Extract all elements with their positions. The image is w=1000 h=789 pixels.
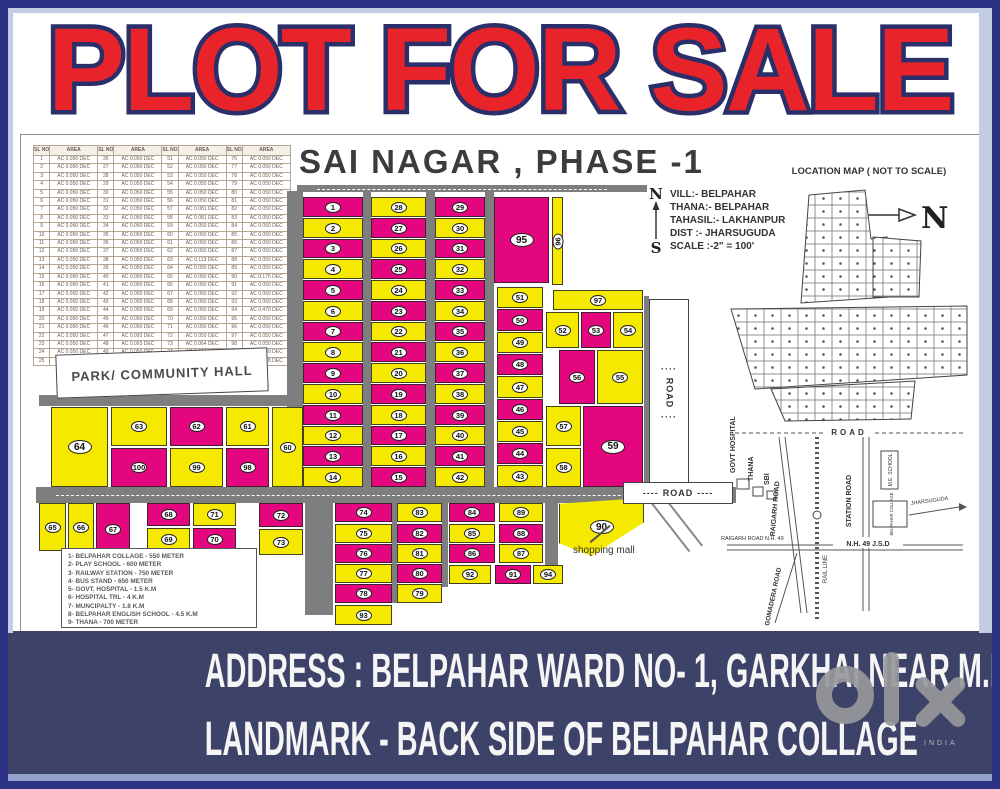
plot-25: 25 bbox=[371, 259, 426, 279]
cell-sl-no: 92 bbox=[226, 290, 242, 298]
legend-item: 5- GOVT. HOSPITAL - 1.5 K.M bbox=[68, 586, 256, 594]
plot-number: 50 bbox=[512, 315, 528, 326]
plot-8: 8 bbox=[303, 342, 363, 362]
site-title: SAI NAGAR , PHASE -1 bbox=[299, 143, 719, 181]
plot-number: 79 bbox=[412, 588, 428, 599]
site-info-block: VILL:- BELPAHAR THANA:- BELPAHAR TAHASIL… bbox=[670, 188, 820, 253]
cell-area: AC 0.050 DEC bbox=[50, 206, 98, 214]
plot-number: 46 bbox=[512, 404, 528, 415]
plot-number: 87 bbox=[513, 548, 529, 559]
plot-15: 15 bbox=[371, 467, 426, 487]
plot-number: 75 bbox=[356, 528, 372, 539]
plot-93: 93 bbox=[335, 605, 392, 625]
plot-20: 20 bbox=[371, 363, 426, 383]
minimap-north-label: N bbox=[921, 201, 948, 236]
plot-33: 33 bbox=[435, 280, 485, 300]
plot-57: 57 bbox=[546, 406, 581, 446]
cell-area: AC 0.050 DEC bbox=[178, 198, 226, 206]
plot-number: 49 bbox=[512, 337, 528, 348]
plot-number: 20 bbox=[391, 368, 407, 379]
cell-sl-no: 42 bbox=[98, 290, 114, 298]
plot-number: 5 bbox=[325, 285, 341, 296]
plot-92: 92 bbox=[449, 565, 491, 584]
plot-number: 63 bbox=[131, 421, 147, 432]
cell-sl-no: 17 bbox=[34, 290, 50, 298]
legend-item: 2- PLAY SCHOOL - 600 METER bbox=[68, 561, 256, 569]
cell-sl-no: 21 bbox=[34, 324, 50, 332]
plot-38: 38 bbox=[435, 384, 485, 404]
cell-sl-no: 20 bbox=[34, 315, 50, 323]
cell-area: AC 0.050 DEC bbox=[50, 315, 98, 323]
cell-area: AC 0.050 DEC bbox=[114, 273, 162, 281]
compass-icon: N S bbox=[646, 187, 666, 259]
cell-area: AC 0.050 DEC bbox=[242, 265, 290, 273]
cell-sl-no: 91 bbox=[226, 282, 242, 290]
road-segment bbox=[442, 503, 448, 587]
plot-number: 71 bbox=[207, 509, 223, 520]
plot-number: 89 bbox=[513, 507, 529, 518]
cell-sl-no: 93 bbox=[226, 298, 242, 306]
cell-sl-no: 68 bbox=[162, 298, 178, 306]
plot-number: 52 bbox=[555, 325, 571, 336]
plot-number: 64 bbox=[68, 440, 92, 454]
plot-10: 10 bbox=[303, 384, 363, 404]
plot-number: 27 bbox=[391, 223, 407, 234]
plot-73: 73 bbox=[259, 529, 303, 555]
cell-area: AC 0.050 DEC bbox=[50, 240, 98, 248]
header-area: AREA bbox=[178, 146, 226, 156]
cell-area: AC 0.050 DEC bbox=[242, 231, 290, 239]
plot-72: 72 bbox=[259, 503, 303, 527]
site-info-tahasil: TAHASIL:- LAKHANPUR bbox=[670, 214, 820, 227]
plot-number: 25 bbox=[391, 264, 407, 275]
compass-arrow-icon bbox=[651, 201, 661, 241]
frame-inner bbox=[979, 8, 992, 633]
plot-number: 74 bbox=[356, 507, 372, 518]
plot-74: 74 bbox=[335, 503, 392, 522]
cell-sl-no: 84 bbox=[226, 223, 242, 231]
plot-30: 30 bbox=[435, 218, 485, 238]
plot-4: 4 bbox=[303, 259, 363, 279]
cell-sl-no: 46 bbox=[98, 324, 114, 332]
cell-area: AC 0.050 DEC bbox=[114, 290, 162, 298]
cell-area: AC 0.050 DEC bbox=[242, 282, 290, 290]
plot-number: 88 bbox=[513, 528, 529, 539]
cell-sl-no: 28 bbox=[98, 172, 114, 180]
plot-48: 48 bbox=[497, 354, 543, 375]
cell-area: AC 0.050 DEC bbox=[178, 248, 226, 256]
road-dashes: ---- bbox=[697, 488, 713, 498]
cell-sl-no: 53 bbox=[162, 172, 178, 180]
cell-sl-no: 43 bbox=[98, 298, 114, 306]
cell-sl-no: 4 bbox=[34, 181, 50, 189]
header-area: AREA bbox=[242, 146, 290, 156]
plot-number: 21 bbox=[391, 347, 407, 358]
plot-78: 78 bbox=[335, 584, 392, 603]
headline-text: PLOT FOR SALE bbox=[48, 10, 953, 132]
table-row: 11AC 0.050 DEC36AC 0.050 DEC61AC 0.050 D… bbox=[34, 240, 291, 248]
park-label: PARK/ COMMUNITY HALL bbox=[71, 362, 253, 383]
plot-number: 48 bbox=[512, 359, 528, 370]
plot-number: 28 bbox=[391, 202, 407, 213]
cell-sl-no: 13 bbox=[34, 256, 50, 264]
plot-number: 41 bbox=[452, 451, 468, 462]
frame-border bbox=[0, 0, 1000, 8]
plot-18: 18 bbox=[371, 405, 426, 425]
cell-area: AC 0.050 DEC bbox=[178, 324, 226, 332]
plot-29: 29 bbox=[435, 197, 485, 217]
road-dashes: ---- bbox=[643, 488, 659, 498]
table-row: 19AC 0.050 DEC44AC 0.050 DEC69AC 0.050 D… bbox=[34, 307, 291, 315]
plot-51: 51 bbox=[497, 287, 543, 308]
plot-88: 88 bbox=[499, 524, 543, 543]
cell-sl-no: 85 bbox=[226, 231, 242, 239]
cell-sl-no: 81 bbox=[226, 198, 242, 206]
plot-number: 53 bbox=[588, 325, 604, 336]
cell-area: AC 0.050 DEC bbox=[50, 282, 98, 290]
cell-sl-no: 37 bbox=[98, 248, 114, 256]
cell-sl-no: 61 bbox=[162, 240, 178, 248]
plot-number: 83 bbox=[412, 507, 428, 518]
cell-sl-no: 59 bbox=[162, 223, 178, 231]
cell-sl-no: 56 bbox=[162, 198, 178, 206]
plot-number: 34 bbox=[452, 306, 468, 317]
table-row: 17AC 0.050 DEC42AC 0.050 DEC67AC 0.050 D… bbox=[34, 290, 291, 298]
cell-sl-no: 39 bbox=[98, 265, 114, 273]
cell-area: AC 0.050 DEC bbox=[50, 223, 98, 231]
cell-area: AC 0.050 DEC bbox=[178, 332, 226, 340]
minimap-sbi-label: SBI bbox=[764, 473, 771, 485]
plot-number: 58 bbox=[556, 462, 572, 473]
cell-area: AC 0.050 DEC bbox=[242, 298, 290, 306]
cell-sl-no: 9 bbox=[34, 223, 50, 231]
cell-sl-no: 19 bbox=[34, 307, 50, 315]
cell-sl-no: 22 bbox=[34, 332, 50, 340]
cell-sl-no: 25 bbox=[34, 357, 50, 365]
cell-sl-no: 47 bbox=[98, 332, 114, 340]
table-row: 12AC 0.050 DEC37AC 0.050 DEC62AC 0.050 D… bbox=[34, 248, 291, 256]
bottom-strip bbox=[8, 774, 992, 781]
plot-number: 17 bbox=[391, 430, 407, 441]
olx-x-icon bbox=[908, 670, 972, 734]
plot-97: 97 bbox=[553, 290, 643, 310]
compass-south-label: S bbox=[646, 241, 666, 255]
plot-number: 18 bbox=[391, 410, 407, 421]
table-row: 15AC 0.050 DEC40AC 0.050 DEC65AC 0.050 D… bbox=[34, 273, 291, 281]
plot-37: 37 bbox=[435, 363, 485, 383]
plot-65: 65 bbox=[39, 503, 66, 551]
plot-number: 8 bbox=[325, 347, 341, 358]
plot-number: 76 bbox=[356, 548, 372, 559]
table-row: 13AC 0.050 DEC38AC 0.050 DEC63AC 0.113 D… bbox=[34, 256, 291, 264]
cell-area: AC 0.050 DEC bbox=[50, 181, 98, 189]
cell-area: AC 0.050 DEC bbox=[242, 290, 290, 298]
cell-area: AC 0.050 DEC bbox=[50, 189, 98, 197]
cell-sl-no: 95 bbox=[226, 315, 242, 323]
legend-item: 4- BUS STAND - 650 METER bbox=[68, 578, 256, 586]
plot-61: 61 bbox=[226, 407, 269, 446]
cell-area: AC 0.050 DEC bbox=[50, 172, 98, 180]
table-row: 18AC 0.050 DEC43AC 0.050 DEC68AC 0.050 D… bbox=[34, 298, 291, 306]
plot-number: 86 bbox=[464, 548, 480, 559]
plot-number: 40 bbox=[452, 430, 468, 441]
cell-area: AC 0.050 DEC bbox=[114, 231, 162, 239]
minimap-raigarh-road-label: RAIGARH ROAD bbox=[770, 481, 782, 537]
plot-number: 4 bbox=[325, 264, 341, 275]
plot-44: 44 bbox=[497, 443, 543, 464]
plot-100: 100 bbox=[111, 448, 167, 487]
cell-area: AC 0.050 DEC bbox=[50, 164, 98, 172]
plot-53: 53 bbox=[581, 312, 611, 348]
plot-number: 29 bbox=[452, 202, 468, 213]
road-label-text: ROAD bbox=[664, 378, 674, 409]
plot-number: 73 bbox=[273, 537, 289, 548]
minimap-jharsuguda-label: JHARSUGUDA bbox=[910, 496, 949, 507]
plot-number: 9 bbox=[325, 368, 341, 379]
plot-34: 34 bbox=[435, 301, 485, 321]
table-row: 22AC 0.050 DEC47AC 0.093 DEC72AC 0.050 D… bbox=[34, 332, 291, 340]
cell-area: AC 0.050 DEC bbox=[242, 214, 290, 222]
cell-area: AC 0.050 DEC bbox=[242, 248, 290, 256]
table-header-row: SL NOAREASL NOAREASL NOAREASL NOAREA bbox=[34, 146, 291, 156]
cell-area: AC 0.050 DEC bbox=[242, 189, 290, 197]
plot-42: 42 bbox=[435, 467, 485, 487]
plot-number: 23 bbox=[391, 306, 407, 317]
frame-border bbox=[0, 0, 8, 789]
cell-area: AC 0.050 DEC bbox=[50, 298, 98, 306]
olx-logo: INDIA bbox=[812, 652, 984, 764]
olx-india-label: INDIA bbox=[924, 740, 958, 747]
site-info-district: DIST :- JHARSUGUDA bbox=[670, 227, 820, 240]
cell-sl-no: 38 bbox=[98, 256, 114, 264]
cell-area: AC 0.050 DEC bbox=[178, 307, 226, 315]
legend-item: 9- THANA - 700 METER bbox=[68, 619, 256, 627]
plot-number: 43 bbox=[512, 471, 528, 482]
plot-number: 100 bbox=[131, 462, 148, 473]
road-dashes: ···· bbox=[661, 364, 677, 374]
table-row: 7AC 0.050 DEC32AC 0.050 DEC57AC 0.081 DE… bbox=[34, 206, 291, 214]
plot-number: 37 bbox=[452, 368, 468, 379]
minimap-raigarh-nh49-label: RAIGARH ROAD N.H. 49 bbox=[721, 536, 784, 542]
plot-number: 38 bbox=[452, 389, 468, 400]
plot-number: 1 bbox=[325, 202, 341, 213]
table-row: 21AC 0.050 DEC46AC 0.050 DEC71AC 0.050 D… bbox=[34, 324, 291, 332]
cell-area: AC 0.050 DEC bbox=[50, 231, 98, 239]
plot-number: 31 bbox=[452, 243, 468, 254]
cell-sl-no: 90 bbox=[226, 273, 242, 281]
table-row: 8AC 0.050 DEC33AC 0.050 DEC58AC 0.081 DE… bbox=[34, 214, 291, 222]
road-label-text: ROAD bbox=[663, 488, 694, 498]
plot-56: 56 bbox=[559, 350, 595, 404]
minimap-govt-hospital-label: GOVT HOSPITAL bbox=[730, 416, 737, 473]
cell-area: AC 0.050 DEC bbox=[178, 181, 226, 189]
cell-sl-no: 72 bbox=[162, 332, 178, 340]
plot-86: 86 bbox=[449, 544, 495, 563]
plot-28: 28 bbox=[371, 197, 426, 217]
cell-area: AC 0.050 DEC bbox=[178, 164, 226, 172]
plot-9: 9 bbox=[303, 363, 363, 383]
cell-area: AC 0.050 DEC bbox=[114, 172, 162, 180]
plot-27: 27 bbox=[371, 218, 426, 238]
cell-area: AC 0.050 DEC bbox=[178, 156, 226, 164]
cell-sl-no: 36 bbox=[98, 240, 114, 248]
cell-sl-no: 52 bbox=[162, 164, 178, 172]
cell-area: AC 0.050 DEC bbox=[242, 181, 290, 189]
cell-area: AC 0.470 DEC bbox=[242, 307, 290, 315]
legend-item: 1- BELPAHAR COLLAGE - 550 METER bbox=[68, 553, 256, 561]
header-sl-no: SL NO bbox=[34, 146, 50, 156]
cell-area: AC 0.050 DEC bbox=[178, 265, 226, 273]
minimap-nh49-label: N.H. 49 J.S.D bbox=[846, 541, 889, 548]
plot-number: 97 bbox=[590, 295, 606, 306]
plot-79: 79 bbox=[397, 584, 442, 603]
cell-area: AC 0.175 DEC bbox=[242, 273, 290, 281]
cell-area: AC 0.050 DEC bbox=[50, 273, 98, 281]
cell-area: AC 0.050 DEC bbox=[114, 298, 162, 306]
cell-sl-no: 7 bbox=[34, 206, 50, 214]
cell-sl-no: 63 bbox=[162, 256, 178, 264]
distance-legend: 1- BELPAHAR COLLAGE - 550 METER2- PLAY S… bbox=[61, 548, 257, 628]
headline-banner: PLOT FOR SALE bbox=[10, 10, 990, 132]
plot-number: 32 bbox=[452, 264, 468, 275]
road-centerline bbox=[56, 495, 696, 496]
cell-sl-no: 12 bbox=[34, 248, 50, 256]
cell-area: AC 0.050 DEC bbox=[242, 172, 290, 180]
plot-number: 78 bbox=[356, 588, 372, 599]
cell-area: AC 0.050 DEC bbox=[178, 231, 226, 239]
plot-12: 12 bbox=[303, 426, 363, 445]
plot-number: 2 bbox=[325, 223, 341, 234]
plot-55: 55 bbox=[597, 350, 643, 404]
cell-area: AC 0.050 DEC bbox=[178, 189, 226, 197]
cell-area: AC 0.050 DEC bbox=[114, 189, 162, 197]
plot-number: 92 bbox=[462, 569, 478, 580]
cell-area: AC 0.050 DEC bbox=[242, 198, 290, 206]
plot-number: 15 bbox=[391, 472, 407, 483]
plot-number: 39 bbox=[452, 410, 468, 421]
plot-number: 70 bbox=[207, 534, 223, 545]
cell-area: AC 0.050 DEC bbox=[242, 256, 290, 264]
plot-2: 2 bbox=[303, 218, 363, 238]
plot-number: 84 bbox=[464, 507, 480, 518]
cell-area: AC 0.050 DEC bbox=[114, 265, 162, 273]
plot-66: 66 bbox=[68, 503, 94, 551]
cell-sl-no: 27 bbox=[98, 164, 114, 172]
plot-number: 80 bbox=[412, 568, 428, 579]
cell-area: AC 0.050 DEC bbox=[242, 332, 290, 340]
plot-5: 5 bbox=[303, 280, 363, 300]
cell-sl-no: 24 bbox=[34, 349, 50, 357]
plot-number: 33 bbox=[452, 285, 468, 296]
plot-32: 32 bbox=[435, 259, 485, 279]
cell-area: AC 0.050 DEC bbox=[50, 256, 98, 264]
plot-number: 77 bbox=[356, 568, 372, 579]
cell-area: AC 0.050 DEC bbox=[114, 282, 162, 290]
cell-sl-no: 10 bbox=[34, 231, 50, 239]
cell-sl-no: 66 bbox=[162, 282, 178, 290]
cell-sl-no: 41 bbox=[98, 282, 114, 290]
cell-sl-no: 70 bbox=[162, 315, 178, 323]
cell-sl-no: 11 bbox=[34, 240, 50, 248]
cell-sl-no: 58 bbox=[162, 214, 178, 222]
plot-sale-poster: PLOT FOR SALE SL NOAREASL NOAREASL NOARE… bbox=[0, 0, 1000, 789]
cell-area: AC 0.050 DEC bbox=[242, 315, 290, 323]
plot-82: 82 bbox=[397, 524, 442, 543]
plot-number: 47 bbox=[512, 382, 528, 393]
olx-o-icon bbox=[816, 666, 874, 724]
table-row: 10AC 0.050 DEC35AC 0.050 DEC60AC 0.050 D… bbox=[34, 231, 291, 239]
plot-36: 36 bbox=[435, 342, 485, 362]
plot-number: 30 bbox=[452, 223, 468, 234]
cell-area: AC 0.050 DEC bbox=[50, 332, 98, 340]
plot-number: 85 bbox=[464, 528, 480, 539]
plot-31: 31 bbox=[435, 239, 485, 258]
cell-sl-no: 33 bbox=[98, 214, 114, 222]
plot-43: 43 bbox=[497, 465, 543, 487]
plot-number: 98 bbox=[240, 462, 256, 473]
plot-number: 22 bbox=[391, 326, 407, 337]
legend-item: 3- RAILWAY STATION - 750 METER bbox=[68, 570, 256, 578]
cell-sl-no: 73 bbox=[162, 340, 178, 348]
plot-number: 72 bbox=[273, 510, 289, 521]
table-row: 4AC 0.050 DEC29AC 0.050 DEC54AC 0.050 DE… bbox=[34, 181, 291, 189]
cell-area: AC 0.050 DEC bbox=[50, 340, 98, 348]
road-centerline bbox=[317, 189, 607, 190]
plot-number: 55 bbox=[612, 372, 628, 383]
header-area: AREA bbox=[50, 146, 98, 156]
cell-sl-no: 55 bbox=[162, 189, 178, 197]
cell-sl-no: 89 bbox=[226, 265, 242, 273]
cell-area: AC 0.050 DEC bbox=[114, 206, 162, 214]
plot-number: 60 bbox=[280, 442, 296, 453]
plot-46: 46 bbox=[497, 399, 543, 420]
site-info-thana: THANA:- BELPAHAR bbox=[670, 201, 820, 214]
plot-58: 58 bbox=[546, 448, 581, 487]
cell-sl-no: 96 bbox=[226, 324, 242, 332]
cell-area: AC 0.050 DEC bbox=[178, 290, 226, 298]
plot-number: 13 bbox=[325, 451, 341, 462]
road-segment bbox=[305, 503, 333, 615]
cell-sl-no: 87 bbox=[226, 248, 242, 256]
plot-number: 14 bbox=[325, 472, 341, 483]
cell-sl-no: 29 bbox=[98, 181, 114, 189]
cell-area: AC 0.050 DEC bbox=[50, 307, 98, 315]
plot-number: 10 bbox=[325, 389, 341, 400]
plot-22: 22 bbox=[371, 322, 426, 341]
plot-14: 14 bbox=[303, 467, 363, 487]
header-sl-no: SL NO bbox=[162, 146, 178, 156]
cell-sl-no: 26 bbox=[98, 156, 114, 164]
plot-99: 99 bbox=[170, 448, 223, 487]
cell-area: AC 0.050 DEC bbox=[114, 164, 162, 172]
table-row: 5AC 0.050 DEC30AC 0.050 DEC55AC 0.050 DE… bbox=[34, 189, 291, 197]
plot-number: 42 bbox=[452, 472, 468, 483]
plot-number: 93 bbox=[356, 610, 372, 621]
plot-62: 62 bbox=[170, 407, 223, 446]
plot-number: 94 bbox=[540, 569, 556, 580]
plot-47: 47 bbox=[497, 376, 543, 398]
plot-number: 95 bbox=[510, 233, 534, 247]
cell-sl-no: 44 bbox=[98, 307, 114, 315]
header-sl-no: SL NO bbox=[226, 146, 242, 156]
cell-area: AC 0.093 DEC bbox=[114, 340, 162, 348]
plot-96: 96 bbox=[552, 197, 563, 285]
plot-45: 45 bbox=[497, 421, 543, 442]
frame-border bbox=[992, 0, 1000, 789]
plot-number: 99 bbox=[189, 462, 205, 473]
cell-sl-no: 51 bbox=[162, 156, 178, 164]
plot-number: 54 bbox=[620, 325, 636, 336]
